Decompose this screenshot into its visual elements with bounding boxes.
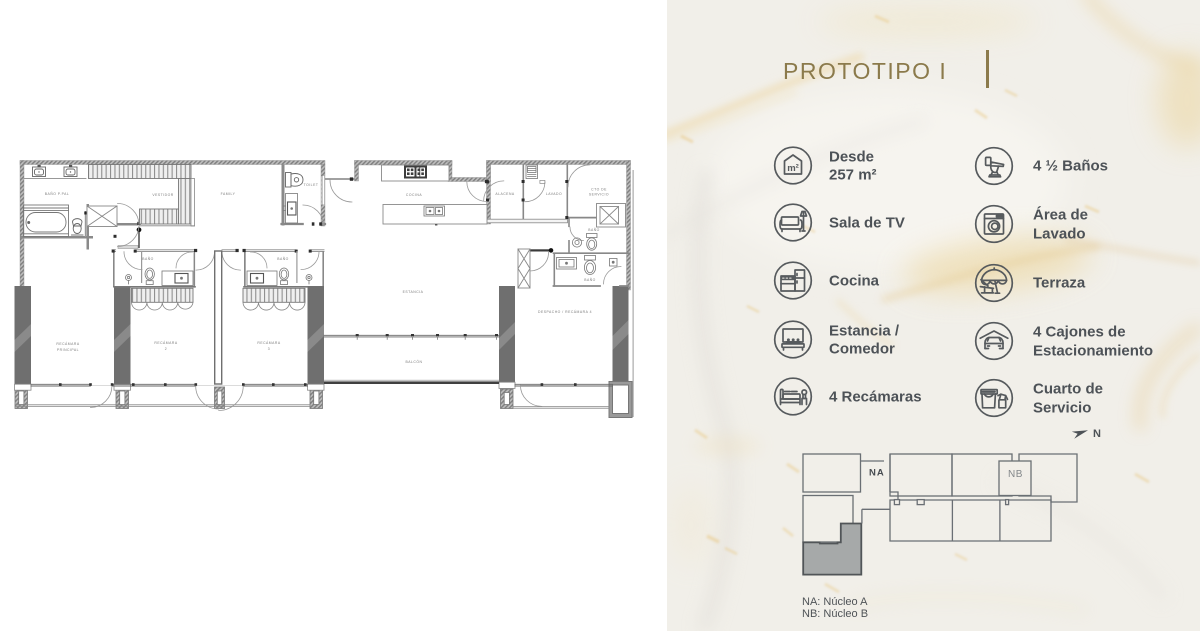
svg-text:CTO DE: CTO DE xyxy=(591,188,607,192)
svg-text:NB: NB xyxy=(1008,469,1023,480)
svg-text:TOILET: TOILET xyxy=(304,183,319,187)
svg-text:COCINA: COCINA xyxy=(406,193,422,197)
svg-text:BAÑO: BAÑO xyxy=(277,256,289,261)
svg-text:NA: NA xyxy=(869,468,885,479)
svg-text:3: 3 xyxy=(268,347,270,351)
svg-text:ESTANCIA: ESTANCIA xyxy=(403,290,424,294)
svg-text:m²: m² xyxy=(787,163,799,174)
svg-text:BAÑO P.PAL: BAÑO P.PAL xyxy=(45,191,69,196)
svg-text:RECÁMARA: RECÁMARA xyxy=(154,341,177,345)
svg-text:VESTIDOR: VESTIDOR xyxy=(152,193,173,197)
svg-text:ALACENA: ALACENA xyxy=(495,192,515,196)
svg-text:DESPACHO / RECÁMARA 4: DESPACHO / RECÁMARA 4 xyxy=(538,310,592,314)
svg-text:BAÑO: BAÑO xyxy=(588,227,600,232)
svg-text:LAVADO: LAVADO xyxy=(546,192,562,196)
svg-text:SERVICIO: SERVICIO xyxy=(589,193,609,197)
svg-text:PRINCIPAL: PRINCIPAL xyxy=(57,348,79,352)
svg-text:RECÁMARA: RECÁMARA xyxy=(257,341,280,345)
svg-text:FAMILY: FAMILY xyxy=(221,192,236,196)
svg-text:N: N xyxy=(1093,428,1101,440)
svg-text:RECÁMARA: RECÁMARA xyxy=(56,342,79,346)
svg-text:BAÑO: BAÑO xyxy=(142,256,154,261)
svg-text:BALCÓN: BALCÓN xyxy=(406,359,423,364)
svg-text:BAÑO: BAÑO xyxy=(584,277,596,282)
svg-text:2: 2 xyxy=(165,347,167,351)
